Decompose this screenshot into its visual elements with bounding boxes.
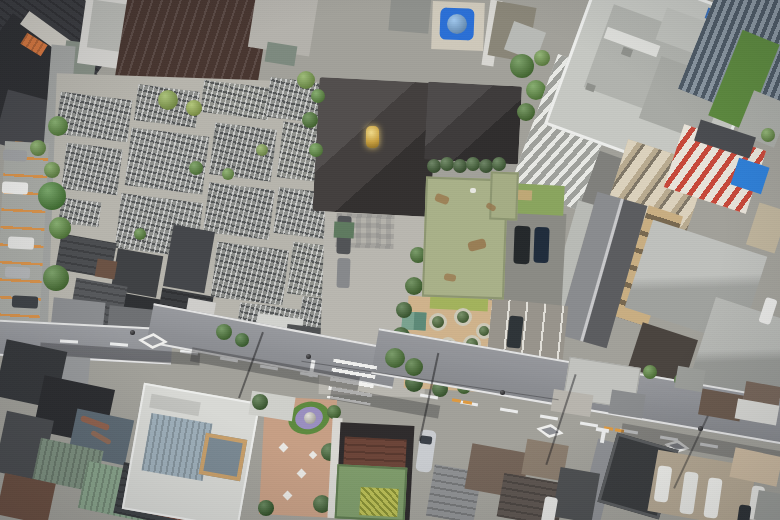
grave-block [61,143,122,195]
roadside-tree [235,333,249,347]
gray-building-north [388,0,431,34]
cemetery-tree [134,228,146,240]
grave-block [211,242,289,305]
cemetery-tree [189,161,203,175]
house-roof-brown [95,258,118,279]
roadside-tree [216,324,232,340]
hedge-bush [492,157,506,171]
hedge-bush [466,157,480,171]
parked-car-black [513,226,530,265]
roadside-tree [385,348,405,368]
cemetery-tree [44,162,60,178]
cemetery-tree [186,100,202,116]
cemetery-tree [158,90,178,110]
cemetery-tree [297,71,315,89]
temple-gold-finial [366,126,379,148]
small-roof-south [608,389,645,418]
round-planter [429,313,447,331]
parked-car-dark [737,504,752,520]
hedge-bush [440,157,454,171]
small-roof-south [674,366,705,393]
temple-entry-canopy [334,221,355,238]
street-tree [30,140,46,156]
utility-pole [306,354,311,359]
aerial-photo [0,0,780,520]
temple-wall-tree [302,112,318,128]
house-roof-dark [552,467,600,520]
temple-wing-roof [424,82,522,165]
tree [510,54,534,78]
parked-car-dark [12,295,39,308]
roadside-tree [405,358,423,376]
cemetery-tree [311,89,325,103]
hedge-bush [453,159,467,173]
rooftop-flowerbed-yellow [359,487,398,517]
parked-car-silver [5,266,31,278]
parked-car-gray [3,149,28,161]
utility-pole [698,426,703,431]
tree [405,277,423,295]
pool-inner-circle [447,14,467,34]
roof-white-speck [470,188,476,193]
street-tree-large [38,182,66,210]
roadside-tree [643,365,657,379]
tree [534,50,550,66]
cemetery-tree-large [43,265,69,291]
cemetery-tree [48,116,68,136]
parked-car-navy [533,227,549,264]
hedge-bush [427,159,441,173]
utility-pole [130,330,135,335]
green-roof-annex [489,172,519,221]
garden-shrub [396,302,412,318]
corner-roof [754,490,780,520]
cemetery-tree [222,168,234,180]
tree [761,128,775,142]
grave-block [56,92,133,142]
park-tree [258,500,274,516]
round-planter [454,308,472,326]
office-roof-court [199,433,248,482]
park-tree [252,394,268,410]
street-tree [49,217,71,239]
park-flowerbed-core [304,412,316,424]
temple-wall-tree [309,143,323,157]
tree [517,103,535,121]
cemetery-tree [256,144,268,156]
utility-pole [500,390,505,395]
parked-van-white [2,181,29,194]
courtyard-parked-car [336,258,350,288]
parked-car-white [8,236,35,249]
minivan-windshield [420,435,433,445]
